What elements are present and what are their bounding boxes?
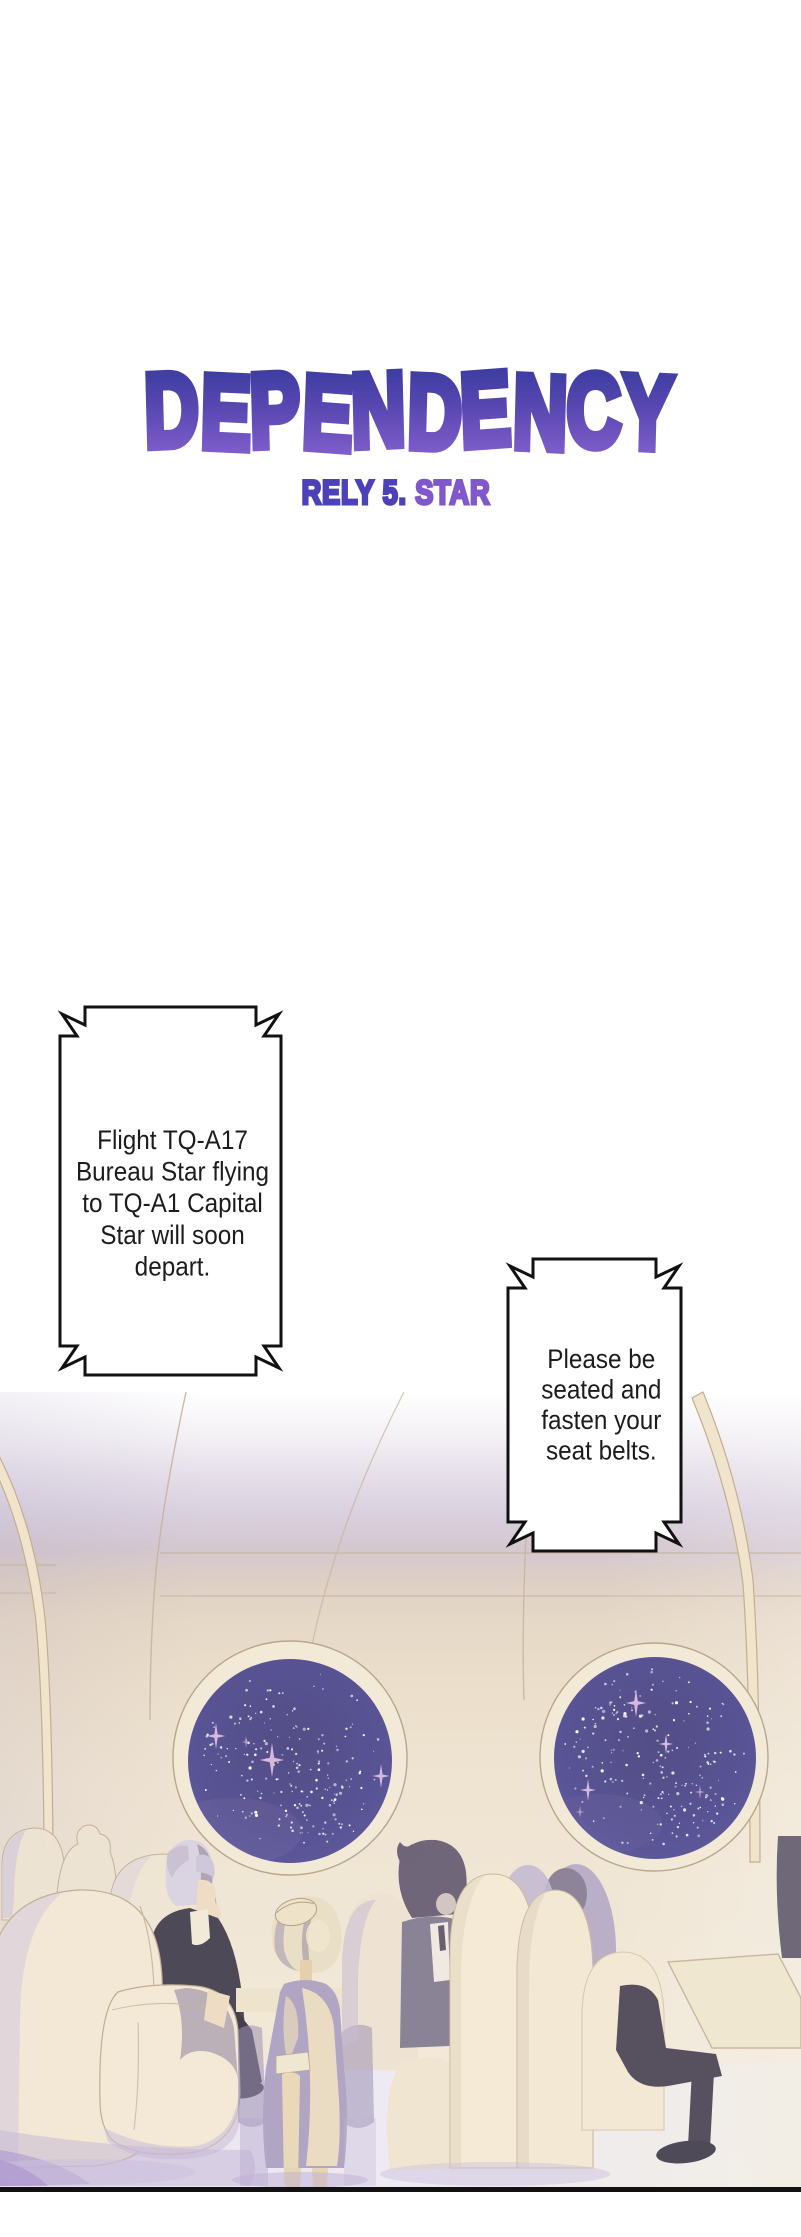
svg-text:Flight TQ-A17: Flight TQ-A17 [97,1126,248,1155]
svg-text:seated and: seated and [541,1375,661,1404]
svg-text:Star will soon: Star will soon [100,1221,244,1250]
svg-text:seat belts.: seat belts. [546,1436,657,1465]
svg-text:fasten your: fasten your [541,1406,662,1435]
svg-text:DEPENDENCY: DEPENDENCY [143,350,675,473]
svg-text:Please be: Please be [547,1345,655,1374]
svg-text:depart.: depart. [135,1252,211,1281]
svg-text:to TQ-A1 Capital: to TQ-A1 Capital [82,1189,262,1218]
svg-text:Bureau Star flying: Bureau Star flying [76,1157,269,1186]
svg-text:RELY 5. STAR: RELY 5. STAR [302,473,491,512]
